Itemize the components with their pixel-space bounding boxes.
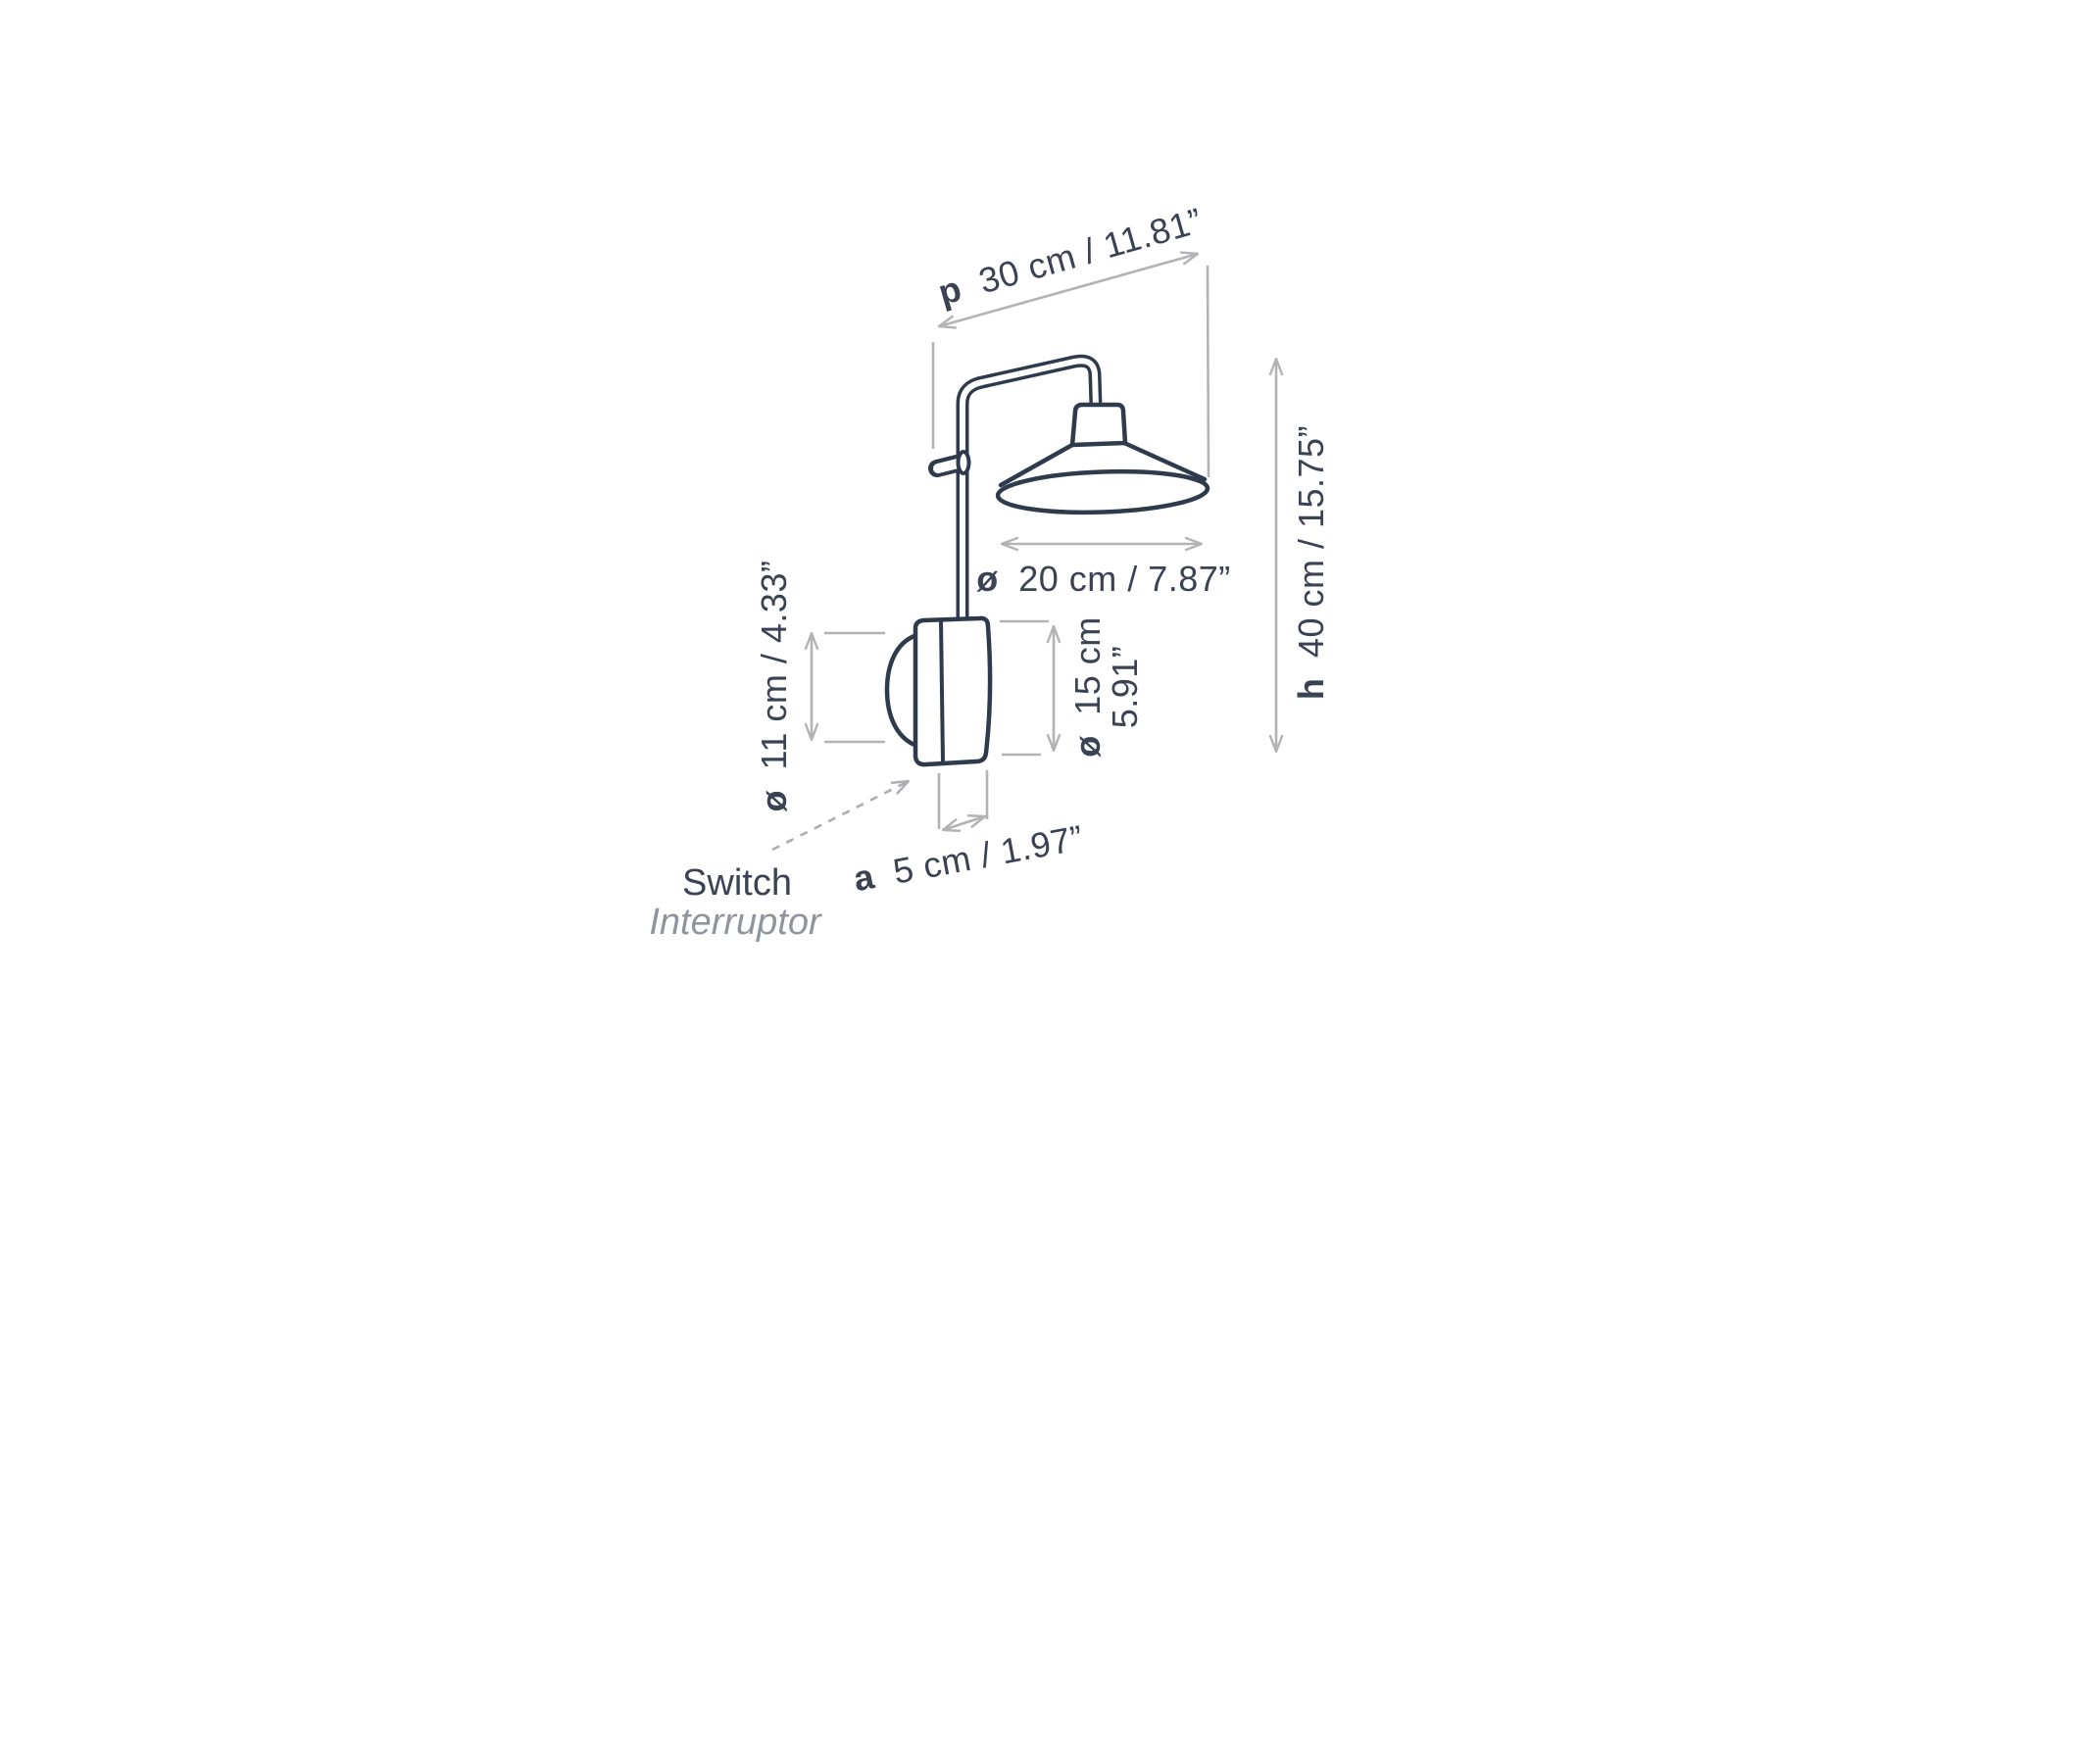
shade-diameter-label: ø 20 cm / 7.87” <box>976 559 1231 599</box>
diffuser-diameter-label: ø 11 cm / 4.33” <box>754 561 794 812</box>
switch-label-es: Interruptor <box>649 902 822 943</box>
wall-mount-body-edge <box>941 620 943 762</box>
diffuser-dome <box>887 636 914 745</box>
wall-mount-body <box>915 618 990 764</box>
dimension-diffuser-diameter: ø 11 cm / 4.33” <box>754 561 885 812</box>
wall-offset-label: a 5 cm / 1.97” <box>851 817 1087 900</box>
body-diameter-label-line2: 5.91” <box>1105 646 1145 729</box>
depth-extension-right <box>1208 266 1209 477</box>
shade-rim <box>997 468 1208 515</box>
dimension-depth: p 30 cm / 11.81” <box>933 200 1209 477</box>
switch-peg-collar <box>959 452 969 473</box>
height-label: h 40 cm / 15.75” <box>1291 425 1331 700</box>
depth-label: p 30 cm / 11.81” <box>934 200 1207 313</box>
dimension-wall-offset: a 5 cm / 1.97” <box>851 770 1087 899</box>
body-diameter-label-line1: ø 15 cm <box>1067 616 1108 758</box>
wall-offset-dimension-line <box>943 816 985 830</box>
shade-neck <box>1072 405 1125 445</box>
switch-label-en: Switch <box>682 862 792 904</box>
dimension-diagram: p 30 cm / 11.81” h 40 cm / 15.75” ø 20 c… <box>0 0 2074 1764</box>
dimension-height: h 40 cm / 15.75” <box>1276 359 1331 752</box>
dimension-shade-diameter: ø 20 cm / 7.87” <box>976 544 1231 599</box>
dimension-body-diameter: ø 15 cm 5.91” <box>1000 616 1145 758</box>
